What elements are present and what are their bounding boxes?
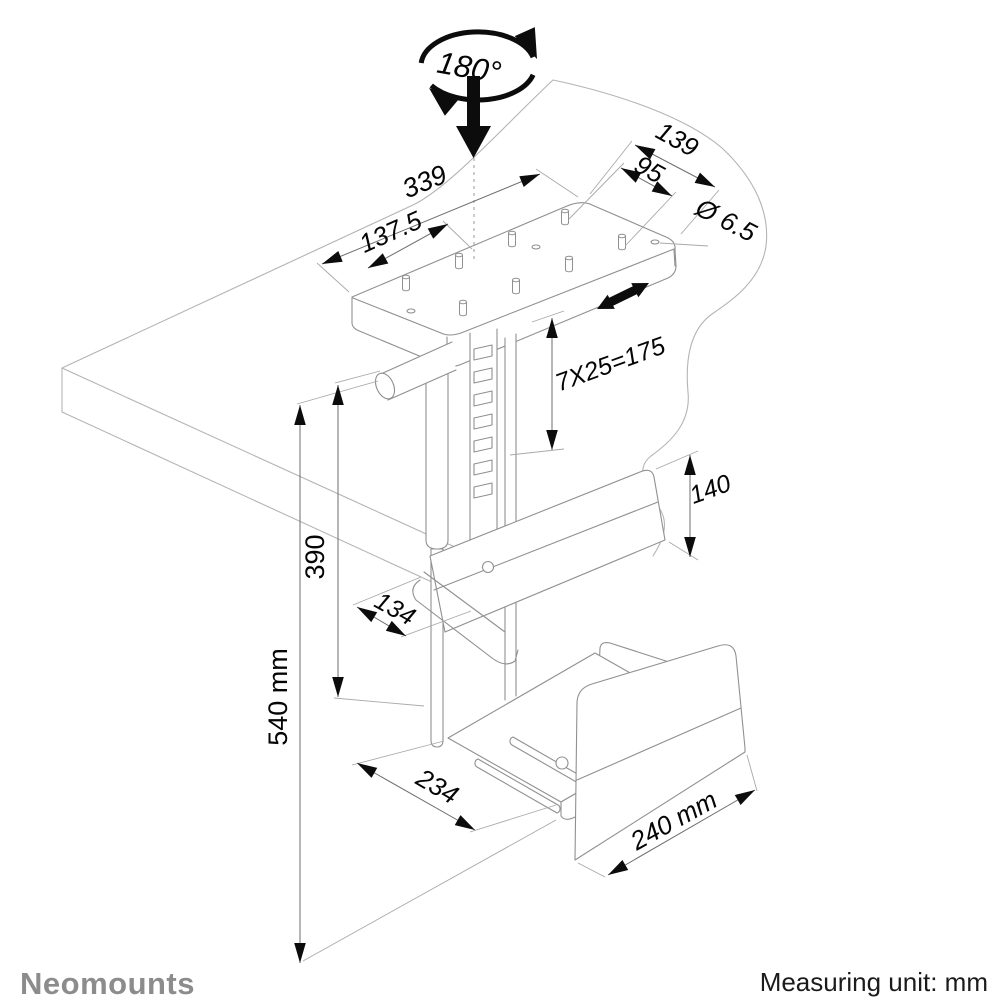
dim-137-5-label: 137.5	[355, 205, 427, 259]
dim-134-label: 134	[370, 587, 420, 632]
dim-139-label: 139	[651, 115, 703, 162]
footer: Neomounts Measuring unit: mm	[20, 966, 988, 1001]
bottom-tray	[448, 643, 745, 860]
down-arrow-shaft	[467, 76, 480, 128]
brand-logo: Neomounts	[20, 966, 195, 1001]
tray-screw	[556, 757, 568, 769]
dim-390-label: 390	[300, 534, 330, 579]
measuring-unit-note: Measuring unit: mm	[760, 967, 988, 997]
dim-540-label: 540 mm	[263, 648, 293, 746]
rotation-indicator: 180°	[421, 27, 547, 158]
dim-slot-pattern-label: 7X25=175	[552, 332, 669, 398]
rotation-arrowhead-left	[422, 80, 459, 116]
dim-hole-diameter-label: Ø 6.5	[690, 192, 762, 248]
down-arrow-head	[456, 126, 491, 158]
clamp-screw	[483, 562, 494, 573]
desk-wavy-edge	[553, 80, 767, 556]
cpu-holder-dimension-drawing: 180°	[0, 0, 1004, 1004]
dim-95-label: 95	[629, 149, 669, 190]
dim-234-label: 234	[410, 762, 463, 810]
dim-339-label: 339	[398, 159, 451, 204]
dim-140-label: 140	[686, 469, 735, 510]
upper-clamp-panel	[413, 470, 665, 664]
outer-tube	[426, 368, 448, 549]
